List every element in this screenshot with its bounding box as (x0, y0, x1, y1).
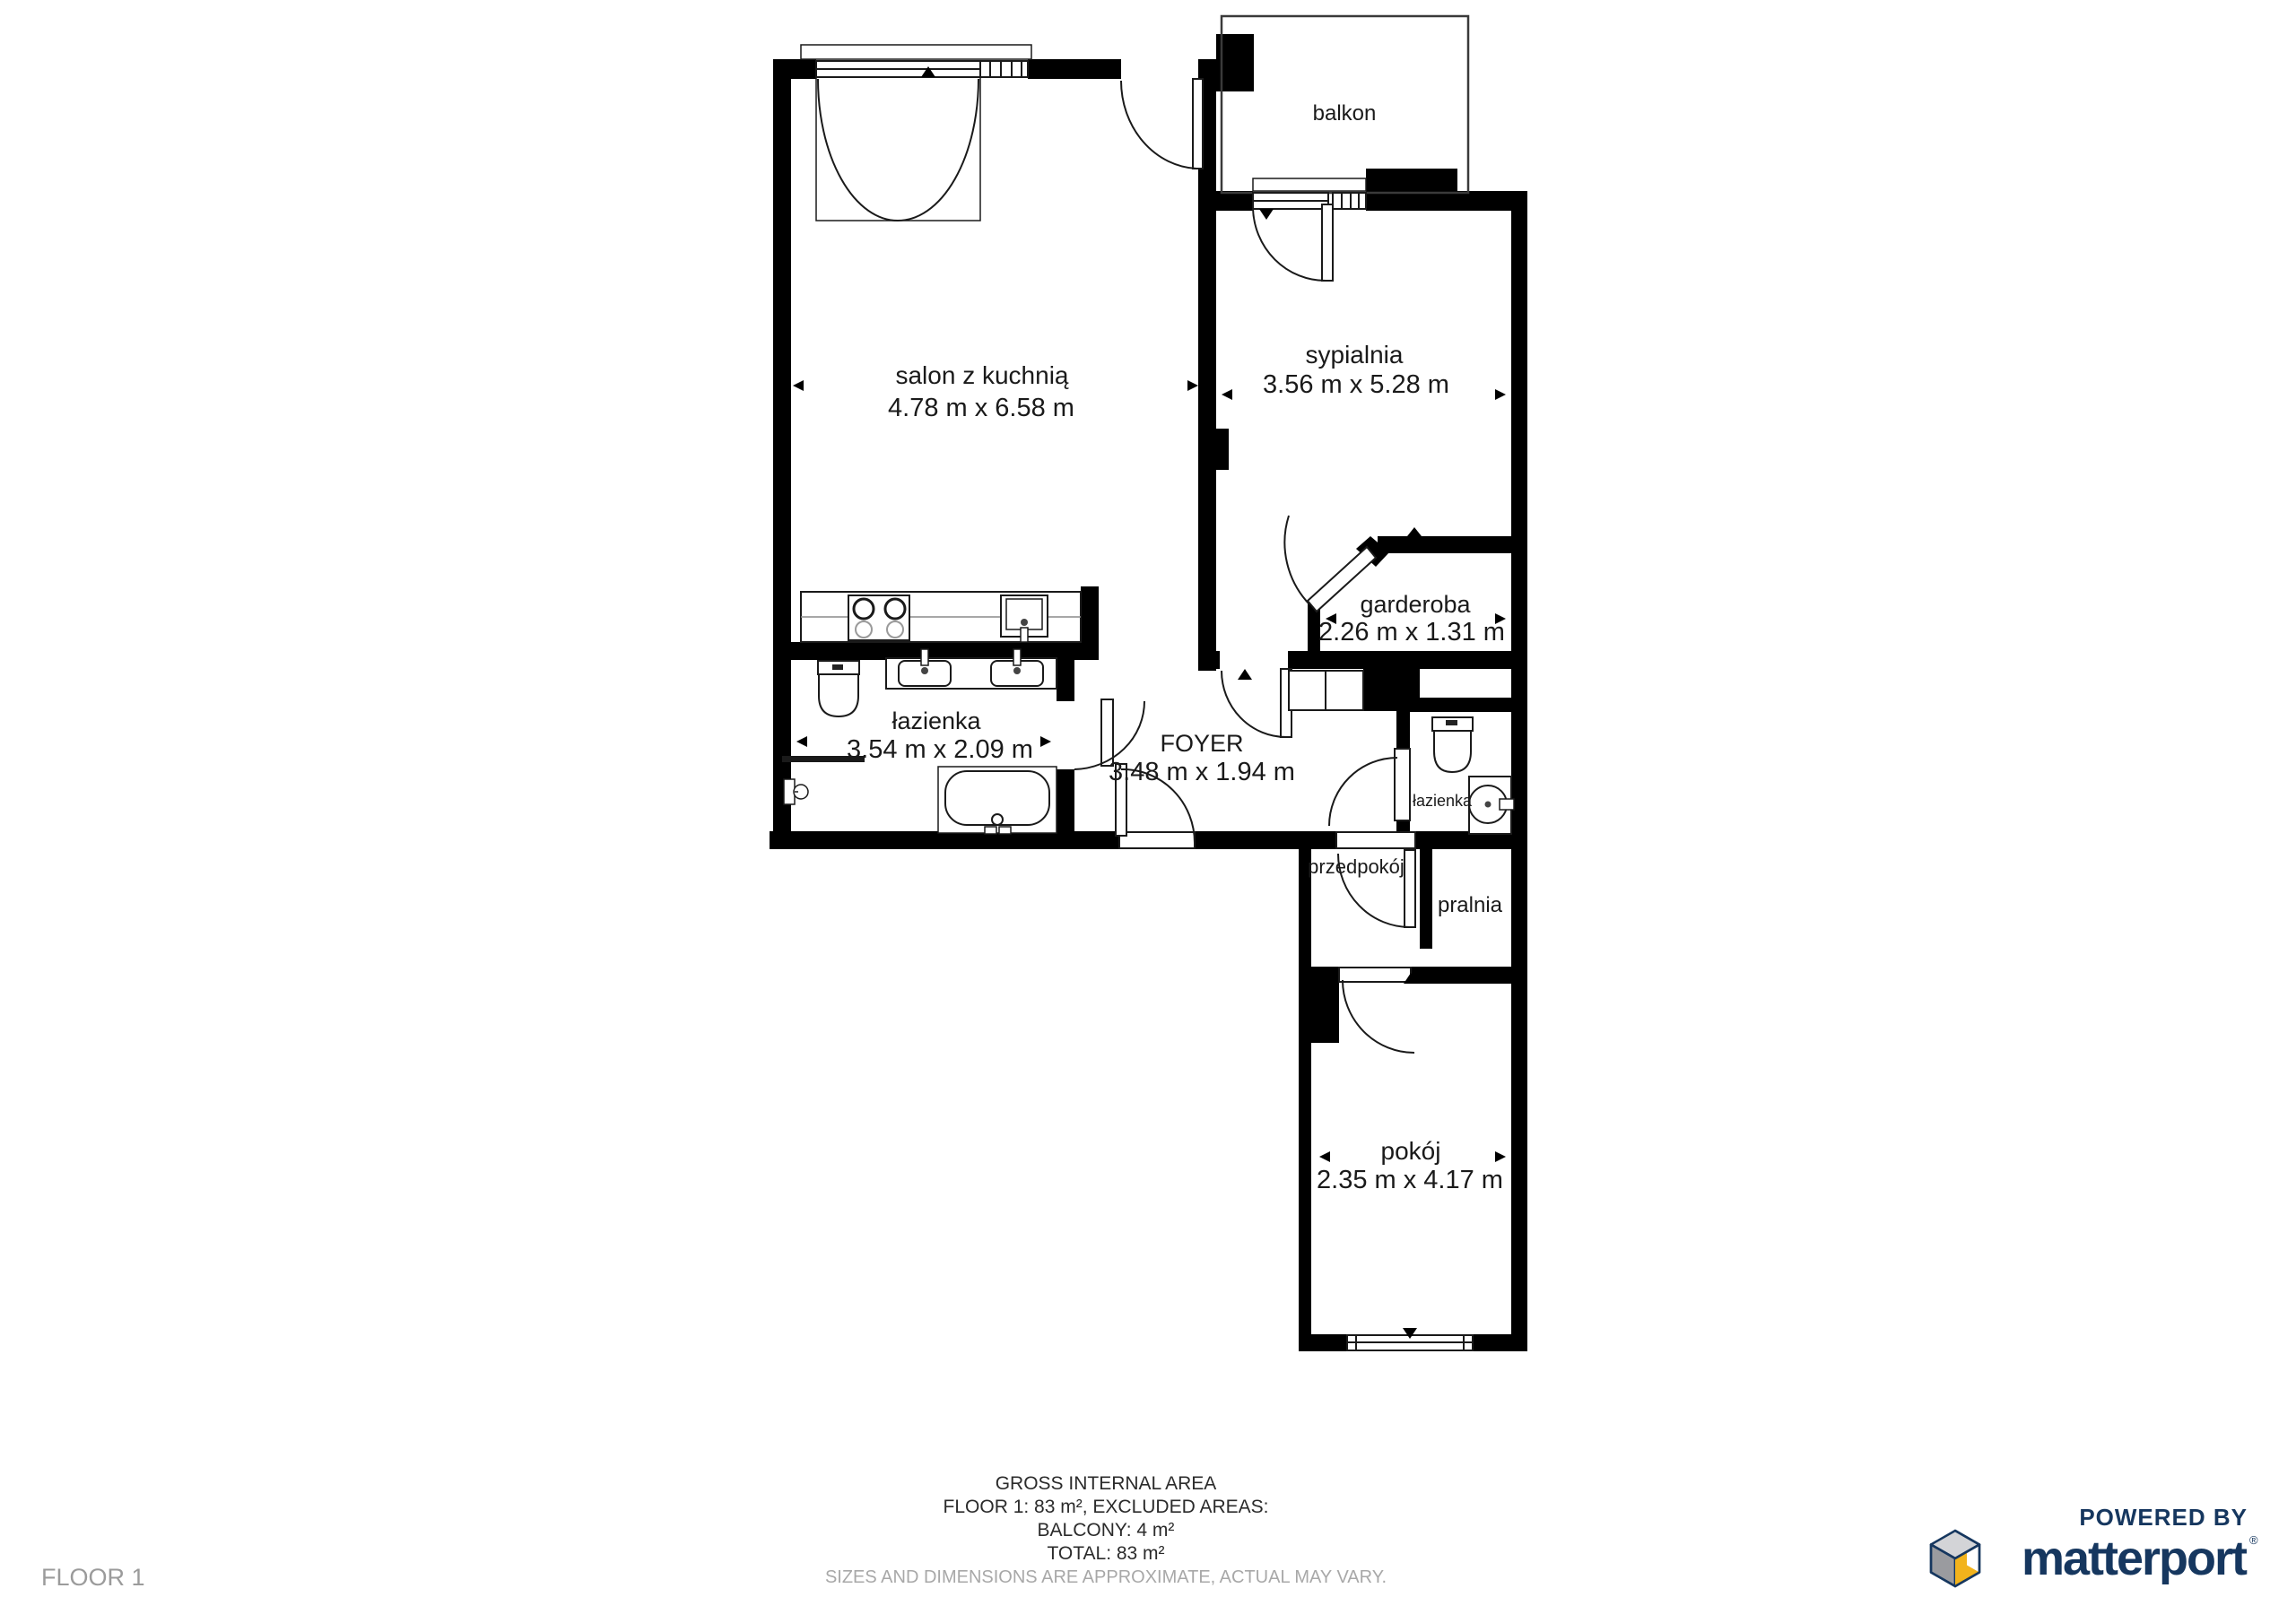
room-dims-salon: 4.78 m x 6.58 m (888, 394, 1074, 422)
room-dims-garderoba: 2.26 m x 1.31 m (1318, 618, 1505, 647)
foyer-closet (1289, 671, 1363, 710)
floor-plan-canvas: balkon salon z kuchnią 4.78 m x 6.58 m s… (0, 0, 2296, 1623)
room-label-przedpokoj: przedpokój (1308, 855, 1405, 878)
room-label-lazienka: łazienka (891, 707, 981, 734)
matterport-logotype: matterport (2022, 1532, 2248, 1585)
room-label-pokoj: pokój (1381, 1137, 1441, 1165)
summary-total: TOTAL: 83 m² (1047, 1543, 1164, 1564)
round-sink-icon (1469, 777, 1514, 834)
summary-disclaimer: SIZES AND DIMENSIONS ARE APPROXIMATE, AC… (825, 1567, 1387, 1587)
summary-floor-areas: FLOOR 1: 83 m², EXCLUDED AREAS: (944, 1497, 1269, 1517)
toilet-icon (818, 661, 859, 716)
room-label-pralnia: pralnia (1438, 893, 1503, 917)
room-label-sypialnia: sypialnia (1306, 341, 1404, 369)
room-dims-lazienka: 3.54 m x 2.09 m (847, 735, 1033, 764)
room-label-foyer: FOYER (1160, 730, 1243, 757)
toilet-icon (1432, 717, 1473, 772)
room-dims-foyer: 3.48 m x 1.94 m (1109, 758, 1295, 786)
room-dims-pokoj: 2.35 m x 4.17 m (1317, 1166, 1503, 1194)
area-summary: GROSS INTERNAL AREA FLOOR 1: 83 m², EXCL… (825, 1473, 1387, 1587)
small-bathroom-fixtures (1432, 717, 1514, 834)
stove-icon (848, 595, 909, 640)
room-label-balkon: balkon (1313, 101, 1377, 126)
matterport-registered-mark: ® (2249, 1533, 2258, 1547)
matterport-branding: POWERED BY matterport ® (1931, 1504, 2258, 1586)
floor-label: FLOOR 1 (41, 1564, 145, 1591)
doors (816, 77, 1415, 1053)
wall-tap-icon (784, 779, 808, 804)
kitchen-sink-icon (1001, 595, 1048, 642)
summary-gross-internal-area: GROSS INTERNAL AREA (996, 1473, 1217, 1494)
kitchen-fixtures (801, 592, 1081, 642)
bathtub-icon (938, 767, 1057, 834)
summary-balcony: BALCONY: 4 m² (1038, 1520, 1175, 1541)
room-label-lazienka-mala: łazienka (1413, 792, 1473, 810)
room-label-salon: salon z kuchnią (895, 361, 1068, 389)
floor-plan-page: balkon salon z kuchnią 4.78 m x 6.58 m s… (0, 0, 2296, 1623)
room-label-garderoba: garderoba (1360, 591, 1471, 618)
room-dims-sypialnia: 3.56 m x 5.28 m (1263, 370, 1449, 399)
powered-by-text: POWERED BY (2079, 1504, 2248, 1531)
matterport-cube-icon (1931, 1531, 1979, 1586)
